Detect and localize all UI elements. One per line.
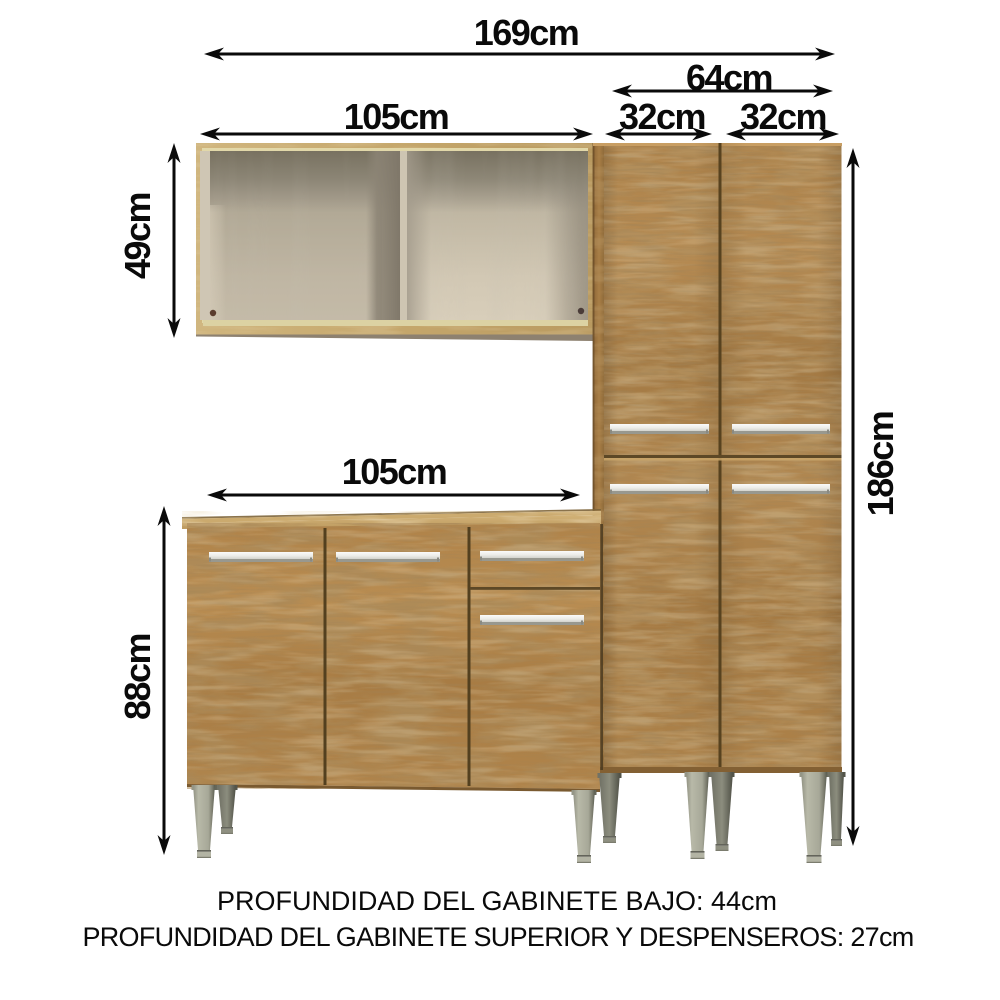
svg-text:88cm: 88cm [117, 634, 158, 720]
svg-text:PROFUNDIDAD DEL GABINETE BAJO:: PROFUNDIDAD DEL GABINETE BAJO: 44cm [217, 886, 777, 916]
svg-text:PROFUNDIDAD DEL GABINETE SUPER: PROFUNDIDAD DEL GABINETE SUPERIOR Y DESP… [82, 922, 913, 952]
svg-text:105cm: 105cm [342, 451, 447, 492]
svg-text:32cm: 32cm [619, 96, 705, 137]
svg-text:32cm: 32cm [740, 96, 826, 137]
svg-text:105cm: 105cm [344, 96, 449, 137]
svg-text:169cm: 169cm [474, 12, 579, 53]
svg-text:64cm: 64cm [686, 57, 772, 98]
svg-text:186cm: 186cm [860, 412, 901, 517]
svg-text:49cm: 49cm [117, 193, 158, 279]
